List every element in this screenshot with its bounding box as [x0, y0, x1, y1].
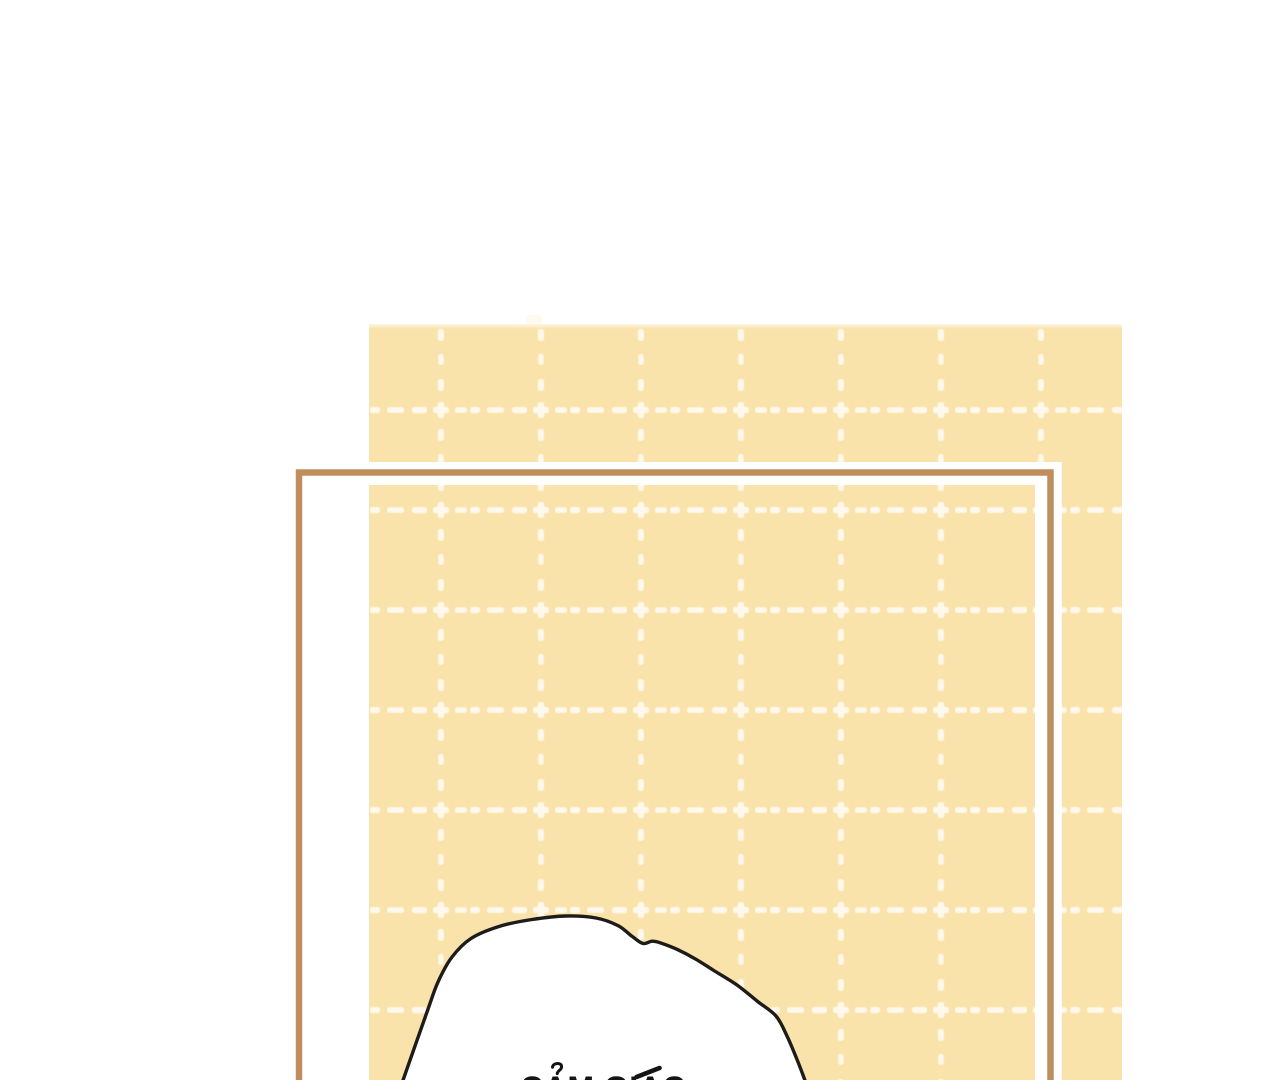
svg-text:CAM GIAC: CAM GIAC [520, 1070, 686, 1080]
